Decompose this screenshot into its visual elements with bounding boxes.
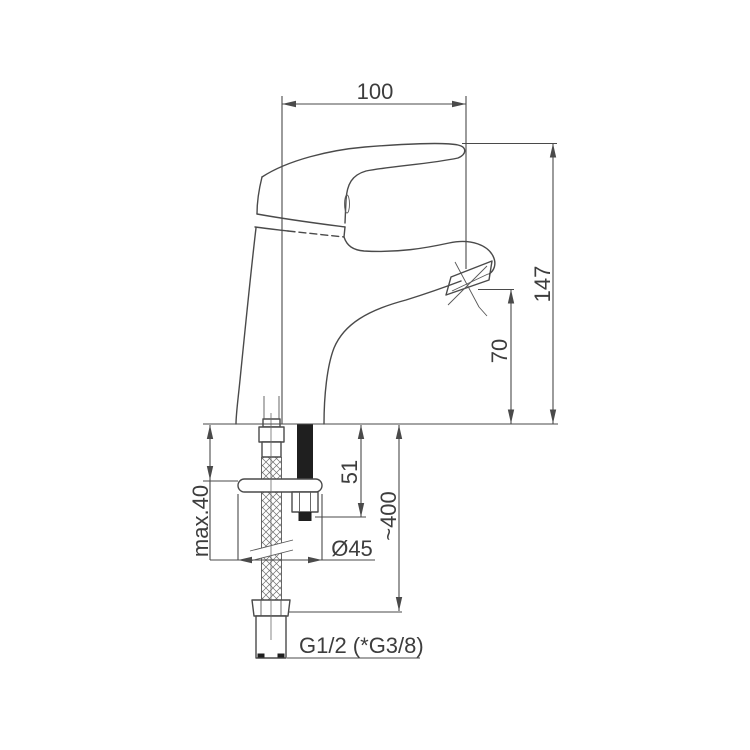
mounting-flange <box>238 479 322 492</box>
hose-inside-body <box>264 396 279 419</box>
dim-max40-label: max.40 <box>188 485 213 557</box>
spout <box>344 227 495 274</box>
dim-100-label: 100 <box>357 79 394 104</box>
drawing-page: 100 147 70 max.40 51 ~400 Ø45 G1 <box>0 0 750 750</box>
dimension-max-deck-thickness: max.40 <box>188 425 238 560</box>
dimension-spout-height: 70 <box>478 290 514 424</box>
thread-callout: G1/2 (*G3/8) <box>287 633 424 658</box>
fixing-nut <box>292 492 318 521</box>
dimension-drawing: 100 147 70 max.40 51 ~400 Ø45 G1 <box>0 0 750 750</box>
threaded-stud <box>297 424 313 480</box>
below-deck-assembly <box>238 413 322 658</box>
dim-147-label: 147 <box>530 266 555 303</box>
faucet-outline <box>236 144 495 424</box>
dim-51-label: 51 <box>337 460 362 484</box>
body-collar <box>257 214 345 227</box>
lever-handle <box>262 144 465 223</box>
hose-ferrule <box>259 419 284 457</box>
dimension-total-height: 147 <box>462 144 557 424</box>
dim-70-label: 70 <box>487 339 512 363</box>
dim-dia45-label: Ø45 <box>331 536 373 561</box>
body-left-edge <box>236 228 256 424</box>
dimension-stud-length: 51 <box>315 425 366 517</box>
thread-label: G1/2 (*G3/8) <box>299 633 424 658</box>
dim-400-label: ~400 <box>376 491 401 541</box>
